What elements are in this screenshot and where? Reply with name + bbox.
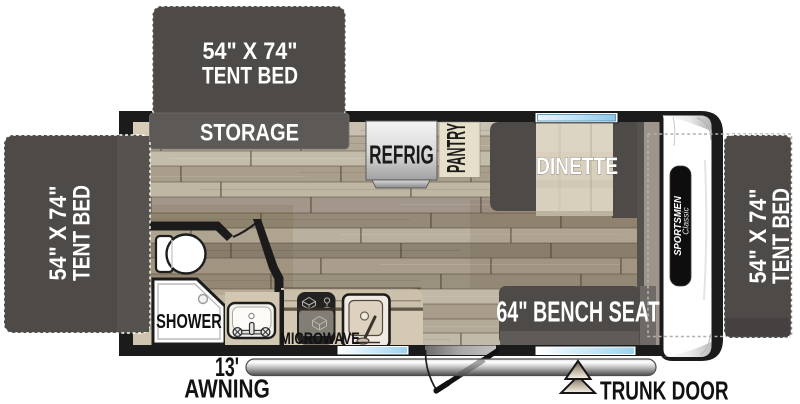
svg-text:TENT BED: TENT BED [202, 61, 298, 89]
svg-text:REFRIG: REFRIG [369, 140, 434, 170]
svg-text:STORAGE: STORAGE [200, 119, 299, 146]
svg-text:TRUNK DOOR: TRUNK DOOR [600, 376, 729, 404]
svg-text:PANTRY: PANTRY [443, 123, 471, 173]
svg-text:54" X 74": 54" X 74" [203, 37, 298, 64]
svg-text:TENT BED: TENT BED [767, 188, 795, 284]
svg-text:Classic: Classic [681, 207, 691, 235]
svg-text:AWNING: AWNING [184, 374, 269, 403]
svg-text:DINETTE: DINETTE [536, 152, 618, 180]
svg-text:SHOWER: SHOWER [156, 310, 222, 333]
svg-text:TENT BED: TENT BED [67, 185, 95, 281]
svg-text:64" BENCH SEAT: 64" BENCH SEAT [496, 297, 659, 329]
